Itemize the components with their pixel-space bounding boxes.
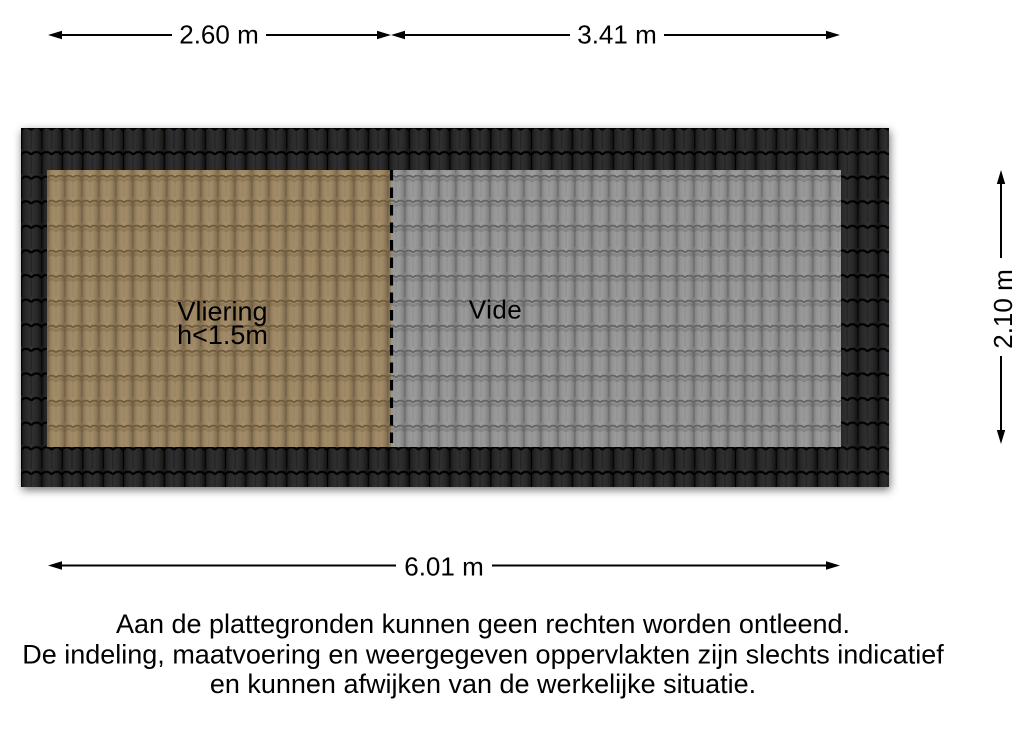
svg-text:h<1.5m: h<1.5m — [177, 320, 268, 350]
svg-text:3.41 m: 3.41 m — [577, 20, 657, 50]
svg-text:2.10 m: 2.10 m — [988, 269, 1018, 349]
svg-text:Vide: Vide — [469, 295, 523, 325]
svg-text:6.01 m: 6.01 m — [404, 552, 484, 582]
svg-text:en kunnen afwijken van de werk: en kunnen afwijken van de werkelijke sit… — [210, 669, 756, 699]
svg-text:Aan de plattegronden kunnen ge: Aan de plattegronden kunnen geen rechten… — [116, 609, 850, 639]
svg-text:De indeling, maatvoering en we: De indeling, maatvoering en weergegeven … — [22, 640, 944, 670]
svg-text:2.60 m: 2.60 m — [179, 20, 259, 50]
